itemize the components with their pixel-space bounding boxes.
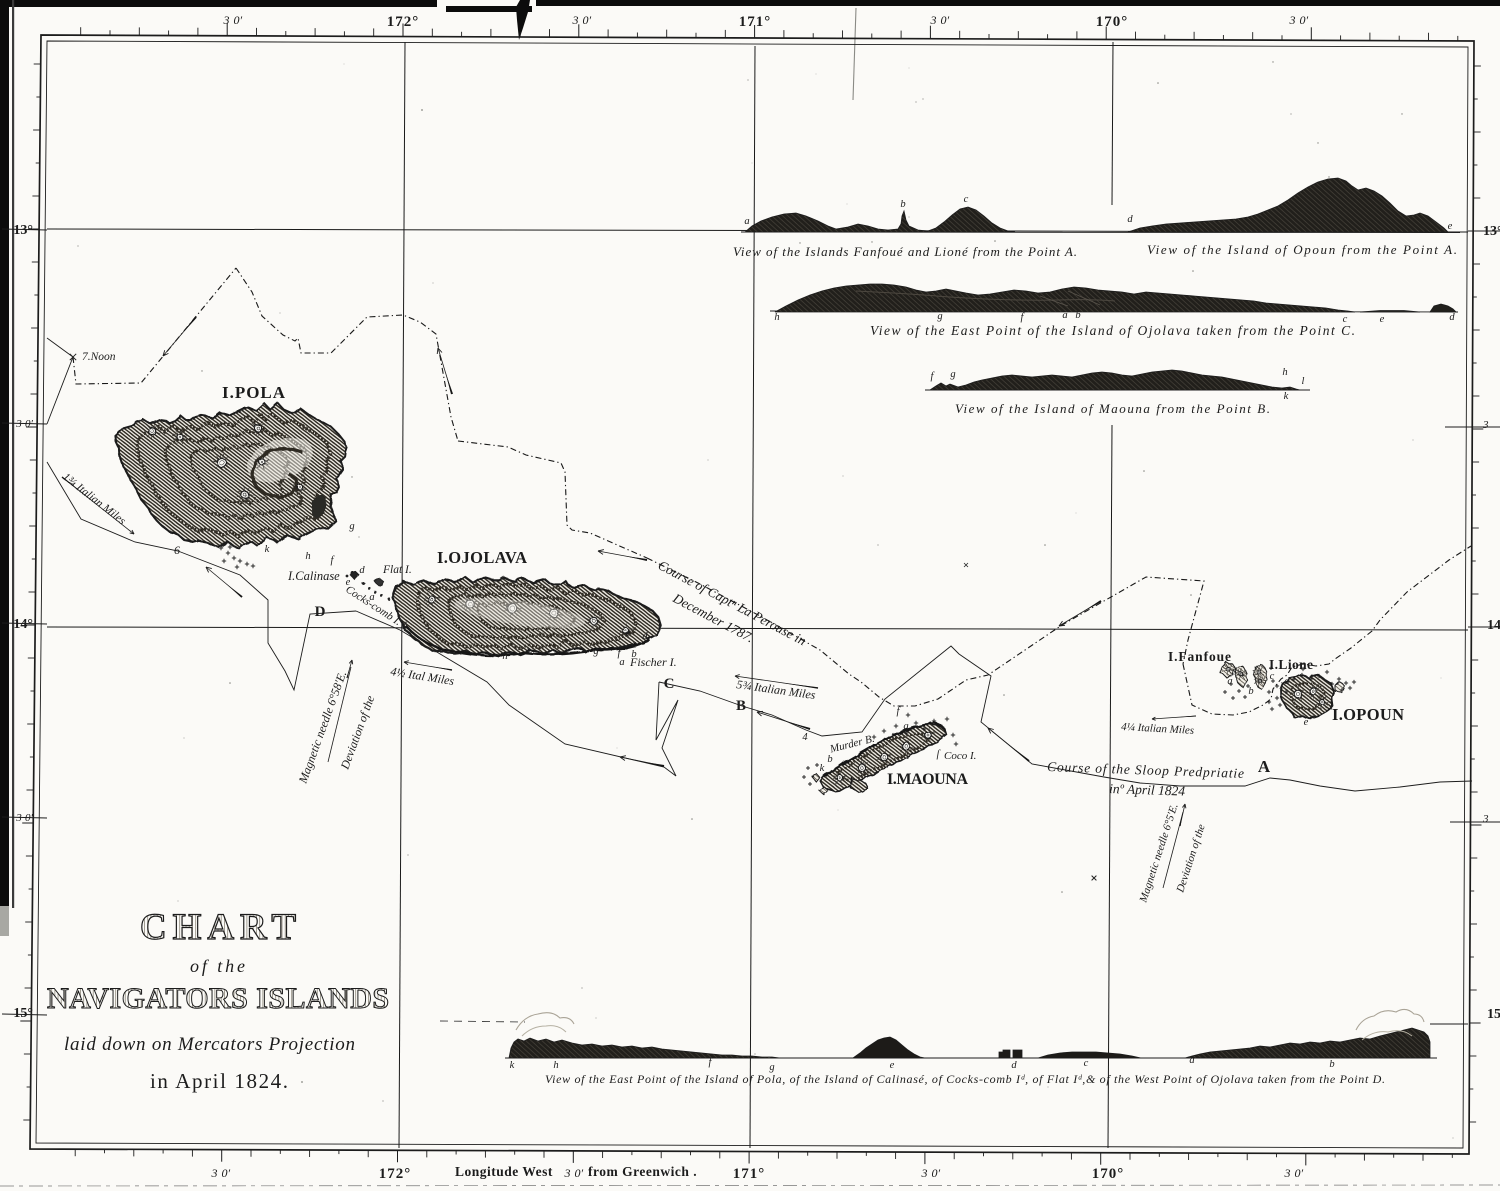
svg-text:CHART: CHART (140, 907, 296, 948)
svg-text:k: k (510, 1060, 515, 1071)
svg-text:a: a (619, 657, 624, 668)
svg-text:I.Calinase: I.Calinase (287, 569, 340, 583)
svg-text:170°: 170° (1096, 14, 1129, 30)
svg-text:3: 3 (564, 1166, 571, 1180)
svg-text:D: D (315, 604, 326, 620)
svg-text:15°: 15° (13, 1006, 33, 1021)
svg-text:0′: 0′ (1295, 1166, 1304, 1180)
svg-text:NAVIGATORS ISLANDS: NAVIGATORS ISLANDS (47, 982, 389, 1015)
svg-text:g: g (903, 721, 908, 732)
svg-text:e: e (890, 1060, 895, 1071)
svg-text:a: a (1062, 310, 1067, 321)
svg-text:3: 3 (930, 13, 937, 27)
svg-text:l: l (1302, 376, 1305, 387)
svg-text:0′: 0′ (222, 1166, 231, 1180)
svg-text:k: k (1284, 391, 1289, 402)
svg-text:A: A (1258, 757, 1271, 776)
svg-text:inº April 1824: inº April 1824 (1109, 781, 1186, 799)
svg-text:Coco I.: Coco I. (944, 750, 976, 762)
svg-text:Flat I.: Flat I. (382, 564, 412, 576)
svg-text:I.POLA: I.POLA (222, 383, 286, 402)
svg-text:b: b (1248, 686, 1253, 697)
svg-text:d: d (1449, 312, 1455, 323)
svg-text:b: b (1329, 1059, 1334, 1070)
svg-text:B: B (736, 698, 746, 714)
svg-text:View of the Island of Opo: View of the Island of Opoun from the Poi… (1147, 242, 1457, 257)
svg-text:g: g (593, 646, 598, 657)
svg-text:15°: 15° (1487, 1007, 1500, 1022)
svg-text:13°: 13° (13, 223, 33, 238)
svg-text:0′: 0′ (1300, 13, 1309, 27)
svg-text:e: e (626, 628, 631, 639)
svg-text:I.Lione: I.Lione (1269, 657, 1313, 672)
svg-text:b: b (631, 649, 636, 660)
svg-text:g: g (937, 311, 942, 322)
svg-text:View of the Island of Maou: View of the Island of Maouna from the Po… (955, 401, 1270, 416)
svg-text:I.Fanfoue: I.Fanfoue (1168, 649, 1231, 664)
svg-text:171°: 171° (733, 1166, 766, 1182)
svg-text:h: h (502, 651, 507, 662)
svg-text:g: g (950, 369, 955, 380)
svg-text:h: h (305, 551, 310, 562)
svg-text:View of the East Point of the: View of the East Point of the Island of … (545, 1072, 1385, 1086)
svg-text:a: a (1227, 676, 1232, 687)
svg-text:d: d (1127, 214, 1133, 225)
svg-text:3: 3 (1284, 1166, 1291, 1180)
svg-text:3: 3 (572, 13, 579, 27)
svg-text:0′: 0′ (234, 13, 243, 27)
svg-text:k: k (820, 763, 825, 774)
svg-text:View of the East Point of: View of the East Point of the Island of … (870, 323, 1355, 338)
svg-text:a: a (744, 216, 749, 227)
svg-text:I.OJOLAVA: I.OJOLAVA (437, 548, 527, 567)
svg-text:3: 3 (15, 418, 22, 430)
svg-text:170°: 170° (1092, 1166, 1125, 1182)
svg-text:0′: 0′ (575, 1166, 584, 1180)
svg-text:d: d (1011, 1060, 1017, 1071)
svg-text:171°: 171° (739, 14, 772, 30)
svg-text:3: 3 (1482, 813, 1489, 825)
svg-text:e: e (1304, 717, 1309, 728)
svg-text:0′: 0′ (941, 13, 950, 27)
svg-text:3: 3 (223, 13, 230, 27)
svg-text:3: 3 (921, 1166, 928, 1180)
svg-text:13°: 13° (1483, 224, 1500, 239)
svg-text:4: 4 (802, 732, 808, 743)
svg-text:a: a (1189, 1055, 1194, 1066)
svg-text:e: e (346, 577, 351, 588)
svg-text:6: 6 (174, 543, 180, 557)
svg-text:c: c (1270, 671, 1275, 682)
svg-text:b: b (1075, 310, 1080, 321)
svg-text:14°: 14° (1487, 618, 1500, 633)
svg-text:a: a (369, 592, 374, 603)
svg-text:Longitude West: Longitude West (455, 1164, 553, 1179)
svg-text:d: d (359, 565, 365, 576)
svg-text:3: 3 (1482, 419, 1489, 431)
svg-text:d: d (1284, 676, 1290, 687)
svg-text:c: c (964, 194, 969, 205)
svg-text:3: 3 (211, 1166, 218, 1180)
svg-text:3: 3 (1289, 13, 1296, 27)
svg-text:0′: 0′ (932, 1166, 941, 1180)
svg-text:e: e (1448, 221, 1453, 232)
svg-text:k: k (265, 544, 270, 555)
svg-text:0′: 0′ (583, 13, 592, 27)
svg-text:h: h (1282, 367, 1287, 378)
svg-text:b: b (827, 754, 832, 765)
svg-text:c: c (1084, 1058, 1089, 1069)
svg-text:e: e (1380, 314, 1385, 325)
svg-text:of the: of the (190, 956, 245, 976)
svg-text:l: l (850, 776, 853, 787)
svg-text:g: g (349, 521, 354, 532)
svg-text:from Greenwich .: from Greenwich . (588, 1164, 697, 1179)
svg-text:b: b (900, 199, 905, 210)
svg-text:7.Noon: 7.Noon (82, 351, 116, 363)
svg-text:3: 3 (15, 812, 22, 824)
svg-text:View of the Islands Fanfoué an: View of the Islands Fanfoué and Lioné fr… (733, 244, 1077, 259)
svg-text:I.OPOUN: I.OPOUN (1332, 705, 1404, 724)
svg-text:172°: 172° (387, 14, 420, 30)
svg-text:172°: 172° (379, 1166, 412, 1182)
svg-text:I.MAOUNA: I.MAOUNA (887, 771, 968, 788)
svg-text:c: c (632, 639, 637, 650)
svg-text:laid down on Mercators Project: laid down on Mercators Projection (64, 1034, 355, 1055)
svg-text:C: C (664, 676, 675, 692)
svg-text:h: h (553, 1060, 558, 1071)
svg-text:d: d (642, 631, 648, 642)
svg-text:h: h (774, 312, 779, 323)
svg-text:14°: 14° (13, 617, 33, 632)
